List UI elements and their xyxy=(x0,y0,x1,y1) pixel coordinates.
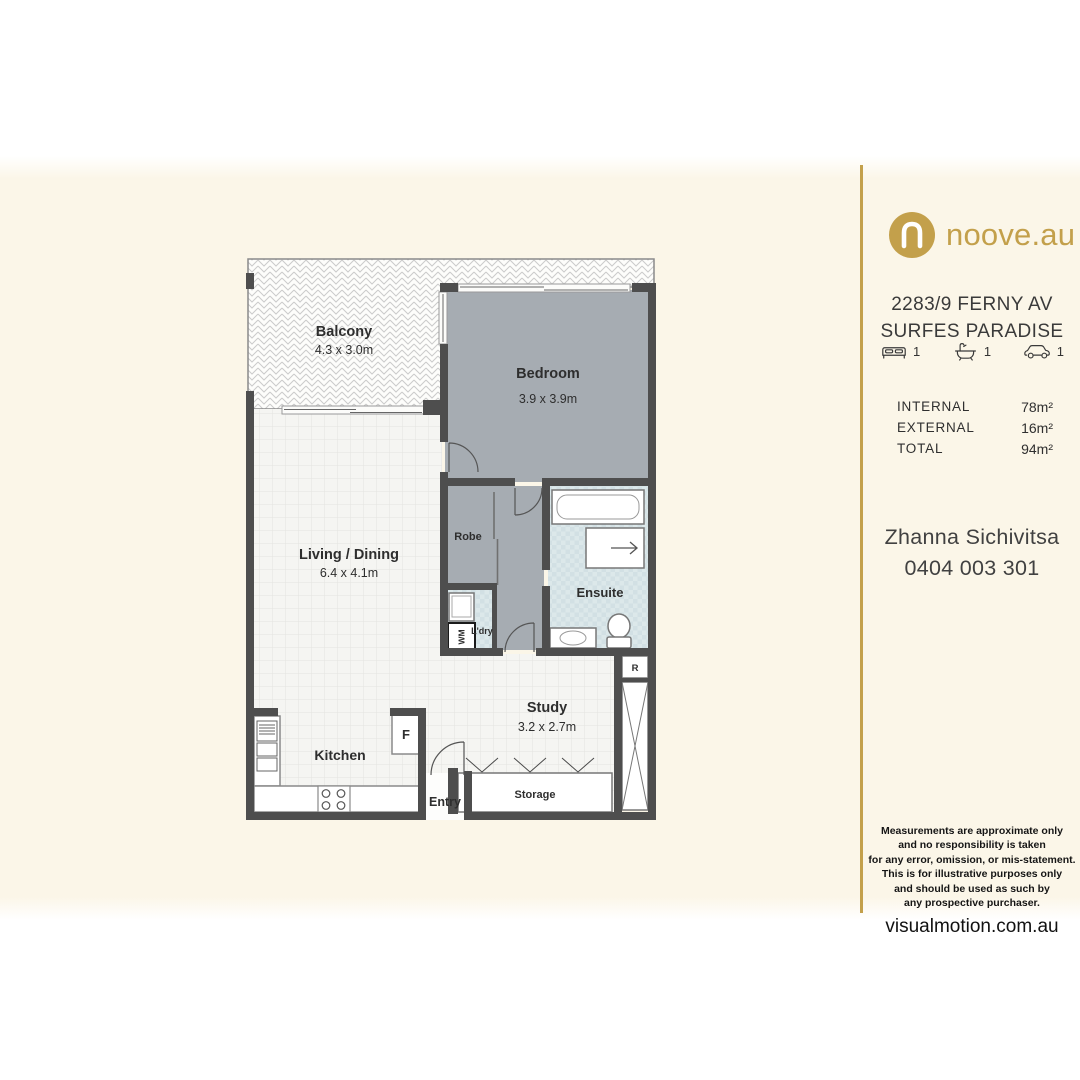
flyer-canvas: Balcony 4.3 x 3.0m Bedroom 3.9 x 3.9m Li… xyxy=(0,0,1080,1080)
entry-label: Entry xyxy=(429,795,461,809)
riser-label: R xyxy=(632,663,639,674)
disclaimer: Measurements are approximate only and no… xyxy=(862,824,1080,938)
feature-cars: 1 xyxy=(1023,342,1064,361)
area-label: EXTERNAL xyxy=(897,420,975,435)
living-label: Living / Dining xyxy=(299,547,399,563)
bedroom-region xyxy=(445,290,650,482)
feature-beds: 1 xyxy=(880,342,920,361)
bedroom-dims: 3.9 x 3.9m xyxy=(519,392,577,406)
disclaimer-line: This is for illustrative purposes only xyxy=(862,867,1080,881)
area-label: TOTAL xyxy=(897,441,943,456)
website-url: visualmotion.com.au xyxy=(862,916,1080,938)
feature-baths: 1 xyxy=(952,341,991,361)
agent-contact: Zhanna Sichivitsa 0404 003 301 xyxy=(866,522,1078,584)
bath-count: 1 xyxy=(984,344,991,359)
area-row-internal: INTERNAL 78m² xyxy=(897,396,1053,417)
disclaimer-line: Measurements are approximate only xyxy=(862,824,1080,838)
brand-logo-text: noove.au xyxy=(946,217,1075,253)
fridge-label: F xyxy=(402,727,410,742)
bedroom-glazing xyxy=(458,284,630,292)
bath-icon xyxy=(952,341,979,361)
bed-count: 1 xyxy=(913,344,920,359)
laundry-label: L'dry xyxy=(471,626,493,636)
robe-label: Robe xyxy=(454,531,482,543)
kitchen-label: Kitchen xyxy=(314,747,365,763)
brand-logo: noove.au xyxy=(888,211,1075,259)
car-icon xyxy=(1023,342,1052,361)
disclaimer-line: for any error, omission, or mis-statemen… xyxy=(862,853,1080,867)
floorplan-drawing: Balcony 4.3 x 3.0m Bedroom 3.9 x 3.9m Li… xyxy=(246,257,656,820)
disclaimer-line: any prospective purchaser. xyxy=(862,896,1080,910)
bedroom-label: Bedroom xyxy=(516,366,580,382)
address-line-1: 2283/9 FERNY AV xyxy=(866,291,1078,318)
storage-label: Storage xyxy=(515,789,556,801)
disclaimer-line: and no responsibility is taken xyxy=(862,838,1080,852)
living-dims: 6.4 x 4.1m xyxy=(320,566,378,580)
study-label: Study xyxy=(527,700,567,716)
disclaimer-line: and should be used as such by xyxy=(862,882,1080,896)
area-value: 78m² xyxy=(1021,399,1053,415)
area-row-external: EXTERNAL 16m² xyxy=(897,417,1053,438)
gold-divider-line xyxy=(860,165,863,913)
area-label: INTERNAL xyxy=(897,399,970,414)
washing-machine-label: WM xyxy=(457,629,467,644)
property-address: 2283/9 FERNY AV SURFES PARADISE xyxy=(866,291,1078,345)
agent-phone: 0404 003 301 xyxy=(866,553,1078,584)
ensuite-label: Ensuite xyxy=(577,585,624,600)
toilet xyxy=(608,614,630,638)
balcony-label: Balcony xyxy=(316,324,372,340)
balcony-dims: 4.3 x 3.0m xyxy=(315,343,373,357)
car-count: 1 xyxy=(1057,344,1064,359)
property-features: 1 1 1 xyxy=(880,341,1064,361)
study-dims: 3.2 x 2.7m xyxy=(518,720,576,734)
area-value: 16m² xyxy=(1021,420,1053,436)
area-summary: INTERNAL 78m² EXTERNAL 16m² TOTAL 94m² xyxy=(897,396,1053,459)
bed-icon xyxy=(880,342,908,361)
area-row-total: TOTAL 94m² xyxy=(897,438,1053,459)
agent-name: Zhanna Sichivitsa xyxy=(866,522,1078,553)
area-value: 94m² xyxy=(1021,441,1053,457)
noove-logo-icon xyxy=(888,211,936,259)
